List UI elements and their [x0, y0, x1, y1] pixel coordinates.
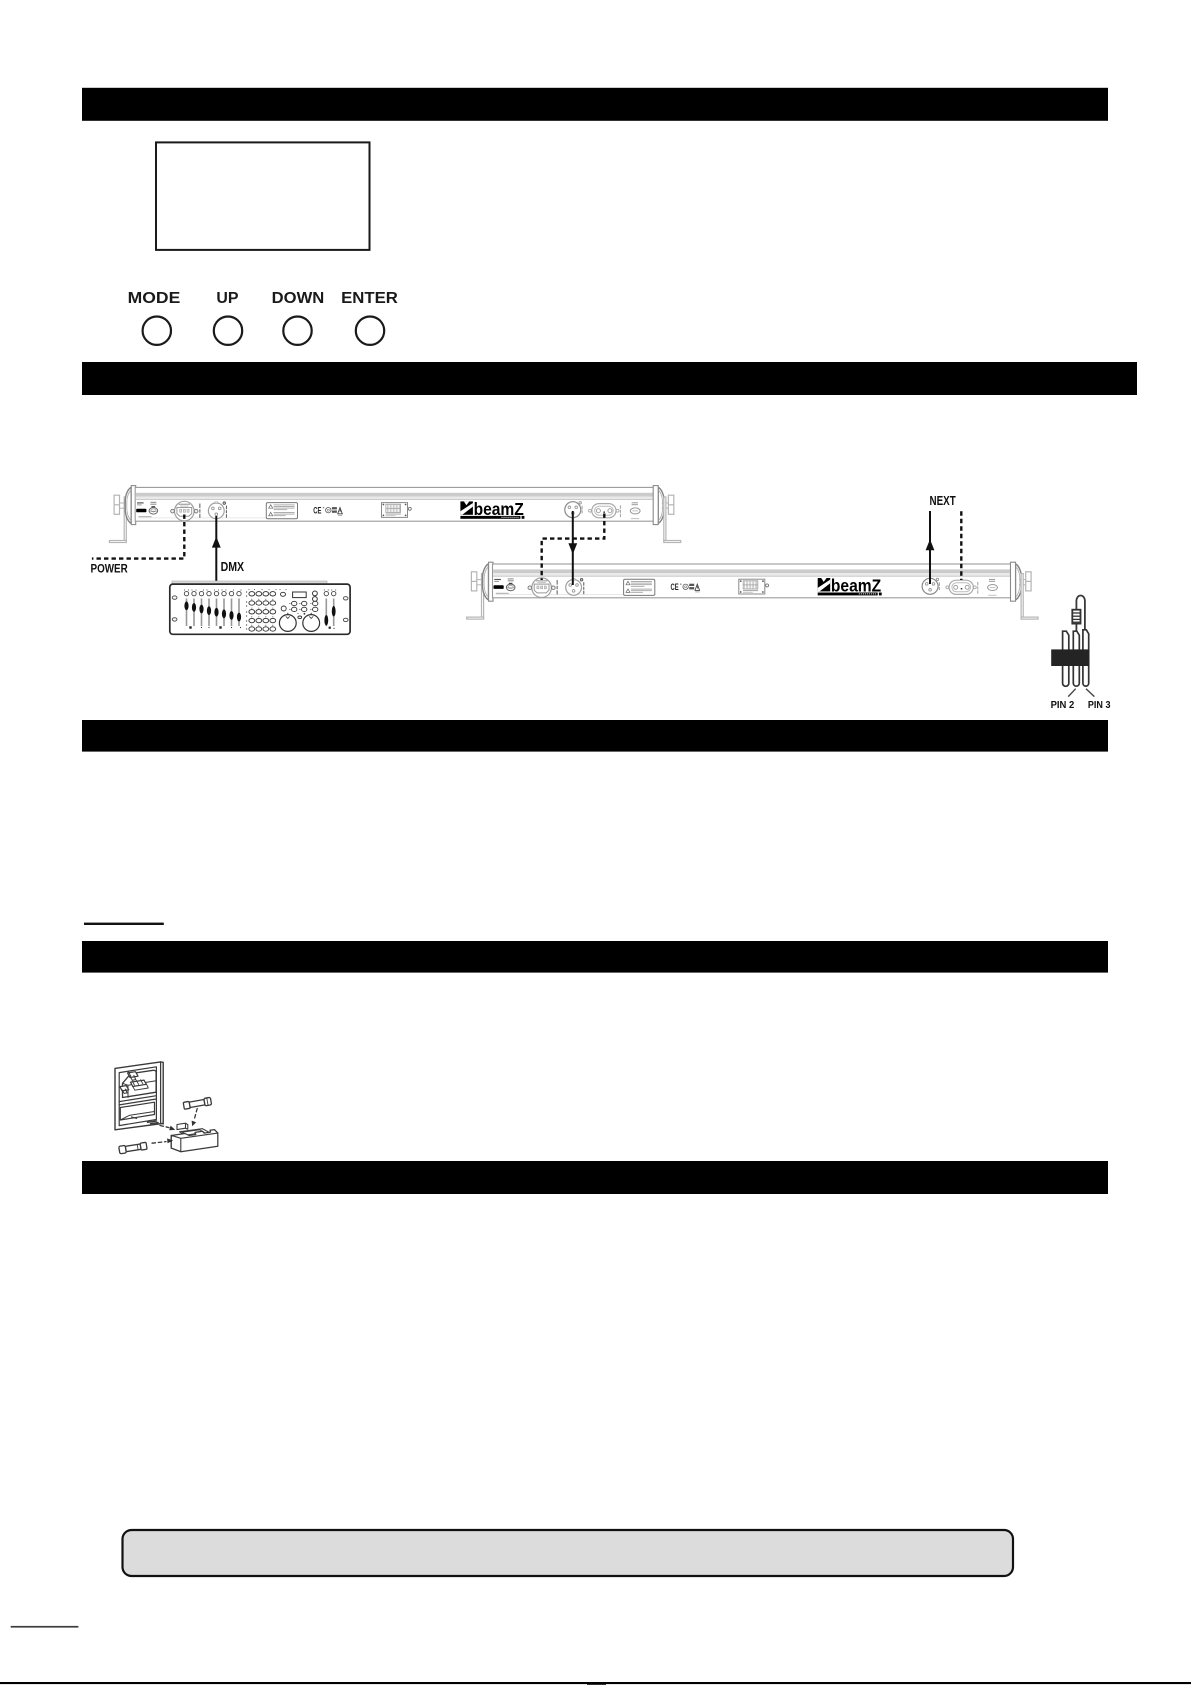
- svg-text:ENTER: ENTER: [341, 290, 398, 307]
- svg-text:UP: UP: [216, 290, 238, 307]
- svg-text:NEXT: NEXT: [930, 494, 956, 508]
- svg-text:POWER: POWER: [91, 562, 128, 576]
- svg-text:DMX: DMX: [221, 559, 245, 574]
- svg-text:DOWN: DOWN: [272, 290, 325, 307]
- svg-text:MODE: MODE: [128, 290, 181, 307]
- svg-text:PIN 3: PIN 3: [1088, 700, 1111, 711]
- svg-text:PIN 2: PIN 2: [1051, 700, 1075, 711]
